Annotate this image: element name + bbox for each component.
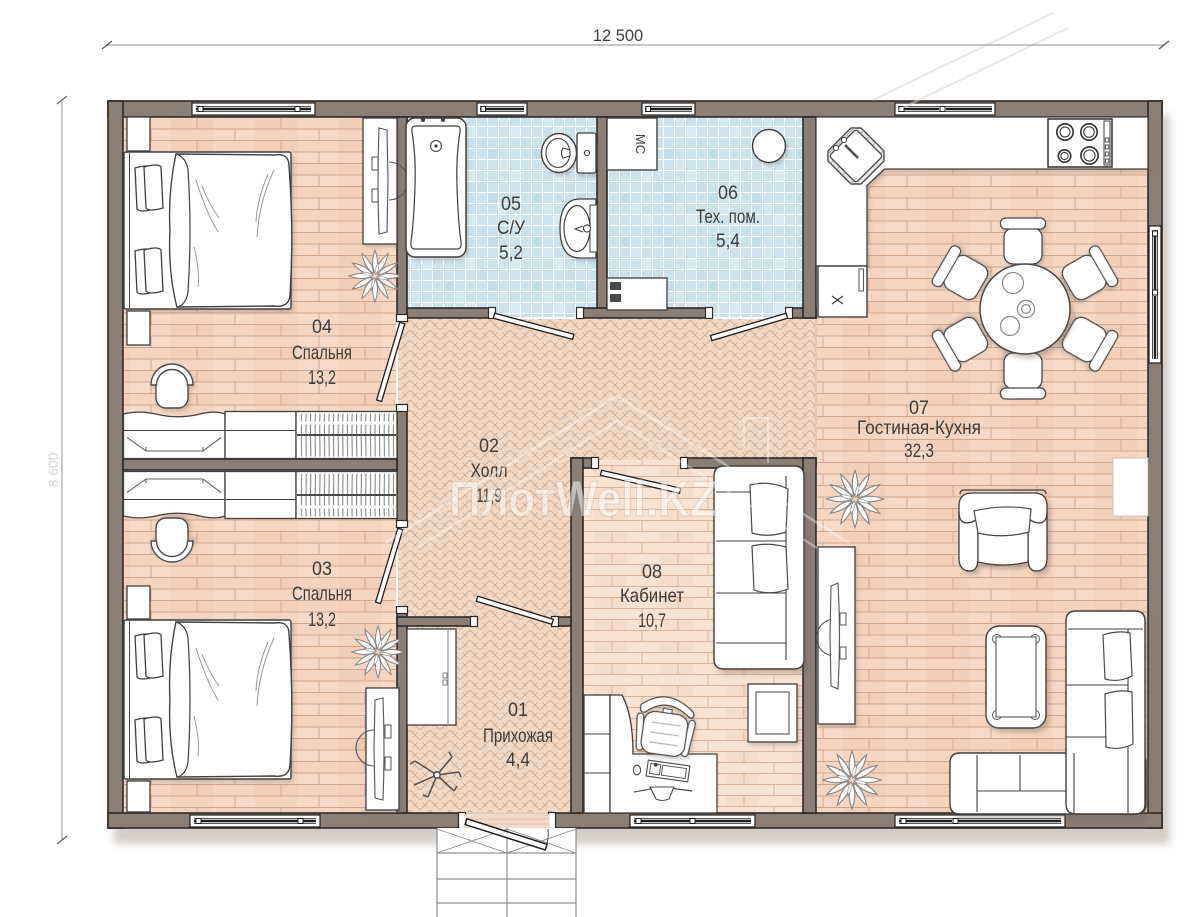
svg-text:07: 07 <box>909 397 929 419</box>
svg-text:10,7: 10,7 <box>638 610 666 632</box>
svg-text:Кабинет: Кабинет <box>620 585 684 607</box>
svg-text:13,2: 13,2 <box>308 609 336 631</box>
svg-text:5,4: 5,4 <box>716 230 740 252</box>
svg-text:13,2: 13,2 <box>308 367 336 389</box>
svg-text:06: 06 <box>718 182 738 204</box>
svg-text:Спальня: Спальня <box>292 342 352 364</box>
svg-text:04: 04 <box>312 316 332 338</box>
svg-text:32,3: 32,3 <box>904 440 934 462</box>
svg-text:12 500: 12 500 <box>593 27 643 45</box>
svg-text:05: 05 <box>501 193 521 215</box>
svg-text:МС: МС <box>633 134 648 154</box>
svg-text:С/У: С/У <box>497 217 526 239</box>
svg-text:Гостиная-Кухня: Гостиная-Кухня <box>857 417 981 439</box>
svg-text:01: 01 <box>508 699 528 721</box>
svg-text:Спальня: Спальня <box>292 583 352 605</box>
svg-text:02: 02 <box>479 435 499 457</box>
svg-text:Прихожая: Прихожая <box>483 725 553 747</box>
svg-text:03: 03 <box>312 558 332 580</box>
svg-text:Тех. пом.: Тех. пом. <box>696 206 760 228</box>
svg-text:8 600: 8 600 <box>45 452 61 487</box>
svg-text:08: 08 <box>642 561 662 583</box>
svg-text:ПлотWell.KZ: ПлотWell.KZ <box>449 471 717 527</box>
svg-text:4,4: 4,4 <box>506 749 530 771</box>
svg-text:5,2: 5,2 <box>499 242 523 264</box>
